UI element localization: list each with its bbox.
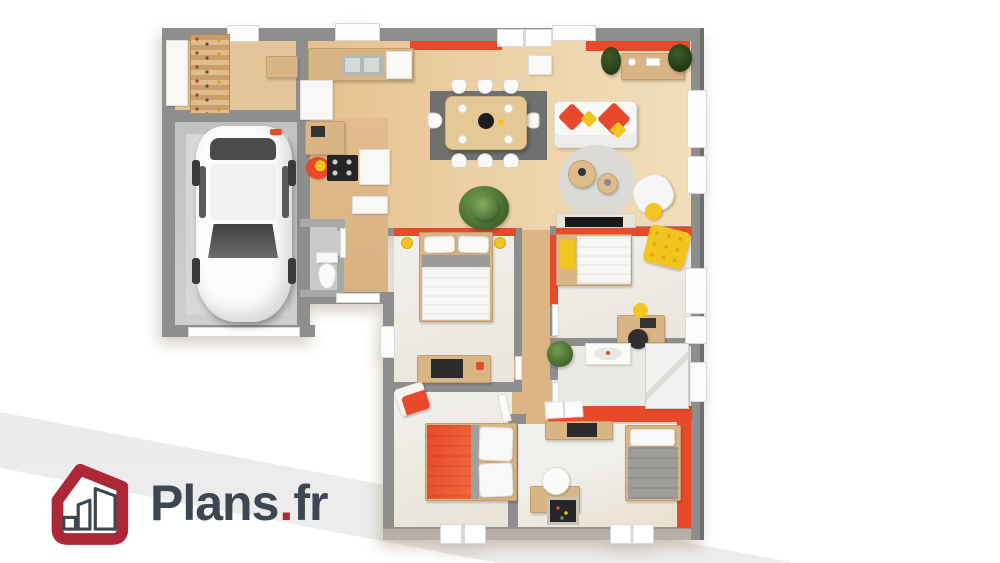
round-chair (542, 467, 570, 495)
storage-shelves (190, 34, 230, 114)
car-rear-window (210, 138, 276, 160)
bedroom2-lamp (633, 303, 648, 318)
window-bathroom-right (689, 362, 707, 402)
bedside-lamp (494, 237, 506, 249)
cooktop (327, 155, 358, 181)
plant-sideboard-left (601, 47, 621, 75)
bed-gray-band (422, 255, 490, 267)
car-roof (210, 164, 276, 220)
toilet-tank (316, 252, 338, 263)
gray-bed-pillow (630, 429, 675, 446)
door-cellar-top (227, 25, 259, 42)
window-kitchen-top (497, 29, 552, 47)
window-bedroom1-left (380, 326, 395, 358)
window-bedroom2-right (685, 268, 707, 314)
tv (565, 217, 623, 227)
shower (645, 343, 689, 409)
dining-chair (503, 153, 519, 168)
car-wheel (192, 160, 200, 186)
floor-lamp (645, 203, 662, 220)
logo-brand: Plans (150, 475, 278, 531)
garage-door (188, 327, 300, 337)
sideboard-paper (646, 58, 660, 66)
bedroom1-desk-item-red (476, 362, 484, 370)
car-wheel (288, 160, 296, 186)
car-windshield (208, 224, 278, 258)
bedroom1-laptop (431, 359, 463, 378)
window-living-right (687, 90, 707, 148)
plant-sideboard-right (668, 44, 692, 72)
coffee-table-2-item (604, 179, 611, 186)
plansfr-floorplan-poster: Plans.fr (0, 0, 1000, 563)
logo-tld: fr (293, 475, 327, 531)
front-door (336, 293, 380, 303)
entry-cabinet (352, 196, 388, 214)
chimney-block-1 (335, 23, 380, 41)
sideboard-cup (628, 58, 636, 66)
plant-living-detail (472, 196, 498, 220)
dark-picture-board (547, 497, 579, 525)
cellar-counter (266, 56, 298, 78)
bedroom2-desk-item (640, 318, 656, 328)
bathroom-plant (547, 341, 573, 367)
wall-bedroom1-right (514, 228, 522, 358)
kitchen-sink (341, 55, 384, 76)
window-bedroom3-bottom (440, 524, 486, 544)
single-bed-duvet (577, 236, 631, 284)
living-cabinet-corner (528, 55, 552, 75)
car-taillight (270, 129, 282, 135)
bed-pillow (424, 235, 456, 253)
dining-plate (458, 104, 467, 113)
car-side-window-left (199, 166, 206, 218)
dining-chair (451, 153, 467, 168)
logo-dot: . (279, 475, 292, 531)
double-bed-red-grayband (471, 425, 479, 499)
desk-nook-computer (311, 126, 325, 137)
washbasin-faucet-dot (606, 351, 610, 355)
door-leaf-wc (340, 228, 346, 258)
red-wall-kitchen-top (410, 41, 502, 50)
door-leaf-bedroom1 (515, 356, 522, 380)
window-bedroom4-bottom (610, 524, 654, 544)
dining-fruit (498, 119, 504, 125)
chimney-block-2 (552, 25, 596, 41)
car-wheel (288, 258, 296, 284)
bed3-pillow (478, 426, 513, 461)
house-logo-icon (44, 456, 134, 550)
dining-plate (458, 135, 467, 144)
bedside-lamp (401, 237, 413, 249)
wall-cellar-garage (162, 110, 310, 122)
plansfr-logo: Plans.fr (44, 456, 327, 550)
kitchen-island (359, 149, 390, 185)
coffee-table-item (578, 168, 586, 176)
bed-duvet (422, 267, 490, 320)
logo-wordmark: Plans.fr (150, 478, 327, 528)
door-leaf-bedroom2 (552, 304, 559, 336)
kitchen-appliance (386, 51, 412, 79)
window-bedroom2-right-2 (685, 316, 707, 344)
wall-bottom (383, 527, 704, 540)
bed-pillow (458, 235, 490, 253)
bed3-pillow (478, 462, 513, 497)
bedroom4-open-book (545, 400, 584, 419)
double-bed-red-duvet (427, 425, 475, 499)
dining-chair (477, 153, 493, 168)
window-living-right-2 (687, 156, 707, 194)
wardrobe (166, 40, 188, 106)
dining-plate (504, 104, 513, 113)
dining-centerpiece (478, 113, 494, 129)
gray-bed-duvet (628, 447, 678, 499)
fridge (300, 80, 333, 120)
car-wheel (192, 258, 200, 284)
bedroom4-laptop (567, 423, 597, 437)
dining-plate (504, 135, 513, 144)
single-bed-pillow-yellow (560, 239, 575, 269)
